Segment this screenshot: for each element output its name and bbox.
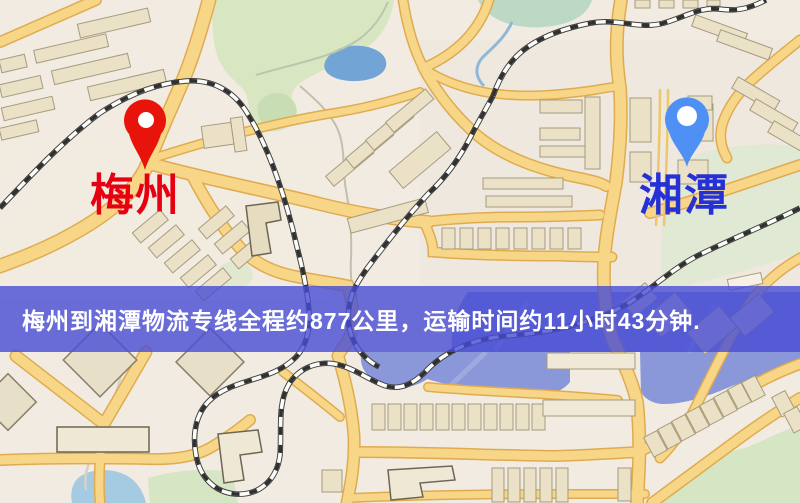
map-canvas (0, 0, 800, 503)
logistics-route-map: 梅州 湘潭 梅州到湘潭物流专线全程约877公里，运输时间约11小时43分钟. (0, 0, 800, 503)
route-info-text: 梅州到湘潭物流专线全程约877公里，运输时间约11小时43分钟. (0, 302, 701, 336)
route-info-banner: 梅州到湘潭物流专线全程约877公里，运输时间约11小时43分钟. (0, 286, 800, 352)
